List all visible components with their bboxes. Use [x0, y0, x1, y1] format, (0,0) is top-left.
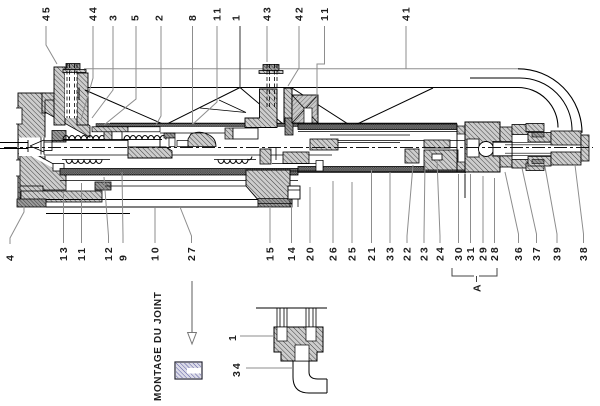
svg-text:11: 11: [212, 6, 224, 21]
svg-text:34: 34: [231, 361, 243, 377]
svg-text:23: 23: [419, 245, 431, 261]
svg-text:15: 15: [265, 245, 277, 261]
svg-text:11: 11: [76, 246, 88, 261]
svg-text:MONTAGE DU JOINT: MONTAGE DU JOINT: [153, 292, 164, 401]
svg-text:37: 37: [531, 245, 543, 261]
svg-text:1: 1: [231, 13, 243, 21]
svg-text:41: 41: [401, 5, 413, 21]
svg-text:2: 2: [154, 13, 166, 21]
svg-text:25: 25: [347, 245, 359, 261]
svg-text:26: 26: [328, 245, 340, 261]
svg-text:28: 28: [489, 245, 501, 261]
svg-text:29: 29: [478, 245, 490, 261]
svg-text:31: 31: [465, 245, 477, 261]
svg-text:4: 4: [5, 253, 17, 261]
svg-text:44: 44: [88, 5, 100, 21]
svg-text:5: 5: [130, 13, 142, 21]
svg-text:36: 36: [513, 245, 525, 261]
svg-text:43: 43: [262, 5, 274, 21]
svg-text:22: 22: [402, 245, 414, 261]
svg-text:33: 33: [385, 245, 397, 261]
svg-text:10: 10: [150, 245, 162, 261]
svg-text:14: 14: [286, 245, 298, 261]
svg-text:20: 20: [305, 245, 317, 261]
svg-text:27: 27: [186, 245, 198, 261]
svg-text:45: 45: [41, 5, 53, 21]
svg-text:12: 12: [103, 245, 115, 261]
svg-text:3: 3: [108, 13, 120, 21]
svg-text:21: 21: [366, 245, 378, 261]
svg-text:38: 38: [578, 245, 590, 261]
svg-text:A: A: [472, 282, 484, 292]
svg-text:39: 39: [552, 245, 564, 261]
svg-text:9: 9: [118, 253, 130, 261]
svg-text:24: 24: [435, 245, 447, 261]
svg-text:42: 42: [294, 5, 306, 21]
svg-text:11: 11: [319, 6, 331, 21]
svg-text:13: 13: [58, 245, 70, 261]
svg-text:30: 30: [453, 245, 465, 261]
svg-text:1: 1: [227, 333, 239, 341]
svg-text:8: 8: [187, 13, 199, 21]
